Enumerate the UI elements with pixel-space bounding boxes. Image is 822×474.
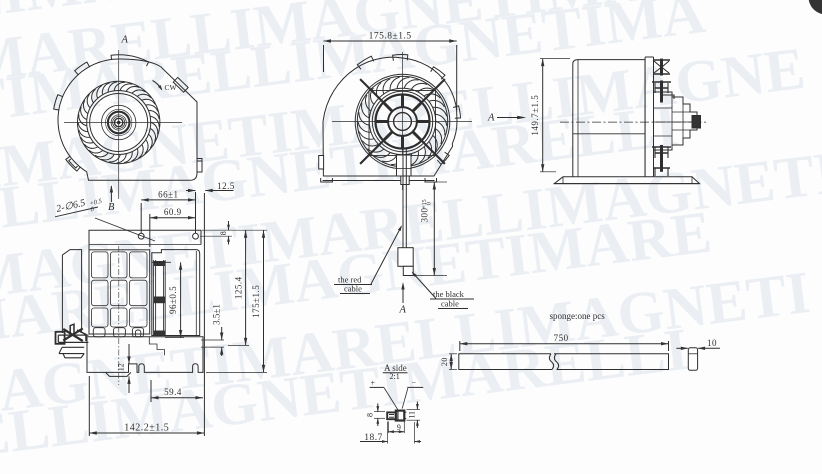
svg-text:149.7±1.5: 149.7±1.5 <box>530 95 540 136</box>
svg-text:96±0.5: 96±0.5 <box>168 286 178 314</box>
svg-text:175±1.5: 175±1.5 <box>251 285 261 318</box>
svg-text:125.4: 125.4 <box>234 276 244 299</box>
svg-text:12: 12 <box>116 363 125 371</box>
svg-text:B: B <box>108 202 115 213</box>
svg-text:sponge:one pcs: sponge:one pcs <box>550 311 606 321</box>
svg-text:142.2±1.5: 142.2±1.5 <box>124 423 169 434</box>
svg-text:20: 20 <box>440 357 449 366</box>
svg-text:750: 750 <box>554 333 569 343</box>
svg-text:cable: cable <box>344 284 362 294</box>
svg-text:+: + <box>371 379 376 388</box>
svg-text:0: 0 <box>426 202 432 205</box>
svg-text:9: 9 <box>397 423 401 432</box>
svg-text:60.9: 60.9 <box>164 207 182 217</box>
svg-text:175.8±1.5: 175.8±1.5 <box>369 32 412 42</box>
svg-text:cable: cable <box>441 299 459 309</box>
svg-text:2:1: 2:1 <box>390 372 400 381</box>
svg-text:3.5±1: 3.5±1 <box>212 304 222 325</box>
svg-text:8: 8 <box>219 231 228 235</box>
svg-text:CW: CW <box>165 83 178 92</box>
svg-text:the black: the black <box>433 289 465 299</box>
svg-text:66±1: 66±1 <box>158 189 178 199</box>
svg-text:−: − <box>412 379 417 388</box>
svg-text:A: A <box>487 113 495 124</box>
svg-text:11: 11 <box>408 411 417 419</box>
svg-text:59.4: 59.4 <box>164 387 182 397</box>
svg-text:A: A <box>399 305 407 316</box>
svg-text:12.5: 12.5 <box>217 181 235 191</box>
svg-text:18.7: 18.7 <box>364 433 383 443</box>
svg-text:A: A <box>121 35 129 46</box>
svg-text:300: 300 <box>420 208 430 223</box>
svg-text:8: 8 <box>366 413 375 417</box>
svg-text:10: 10 <box>707 338 717 348</box>
